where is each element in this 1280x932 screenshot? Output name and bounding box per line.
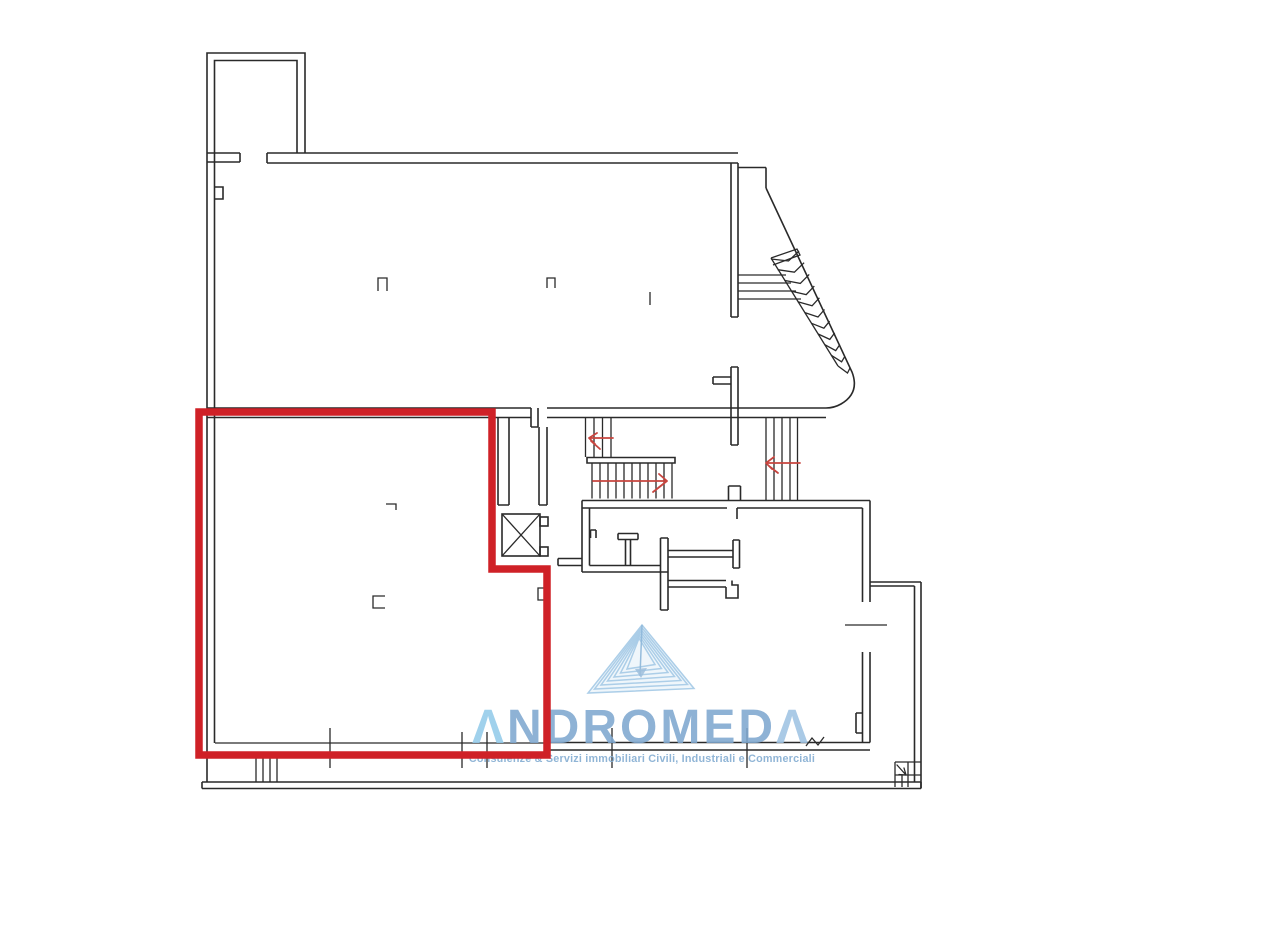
andromeda-logo: ΛNDROMEDΛ Consulenze & Servizi immobilia… xyxy=(469,625,815,765)
floor-plan-page: ΛNDROMEDΛ Consulenze & Servizi immobilia… xyxy=(0,0,1280,932)
corner-stair-icon xyxy=(895,762,921,787)
bottom-right-annex xyxy=(870,582,921,789)
elevator-shaft-icon xyxy=(502,514,548,556)
top-left-room-walls xyxy=(207,53,305,199)
upper-room-symbols xyxy=(378,278,650,305)
stair-tread-chevrons xyxy=(771,251,850,373)
diagonal-stair-structure xyxy=(738,168,854,409)
logo-letter-last: Λ xyxy=(776,701,811,754)
triangle-logo-icon xyxy=(588,625,694,693)
logo-letter-first: Λ xyxy=(472,701,507,754)
stair-arrow-left-icon xyxy=(766,457,800,473)
logo-wordmark: ΛNDROMEDΛ xyxy=(472,701,811,754)
mid-pier-walls xyxy=(713,367,741,500)
floor-plan-svg: ΛNDROMEDΛ Consulenze & Servizi immobilia… xyxy=(0,0,1280,932)
stair-arrow-up-icon xyxy=(589,433,613,449)
red-room-symbols xyxy=(373,504,396,608)
floor-plan-drawing xyxy=(202,53,921,789)
